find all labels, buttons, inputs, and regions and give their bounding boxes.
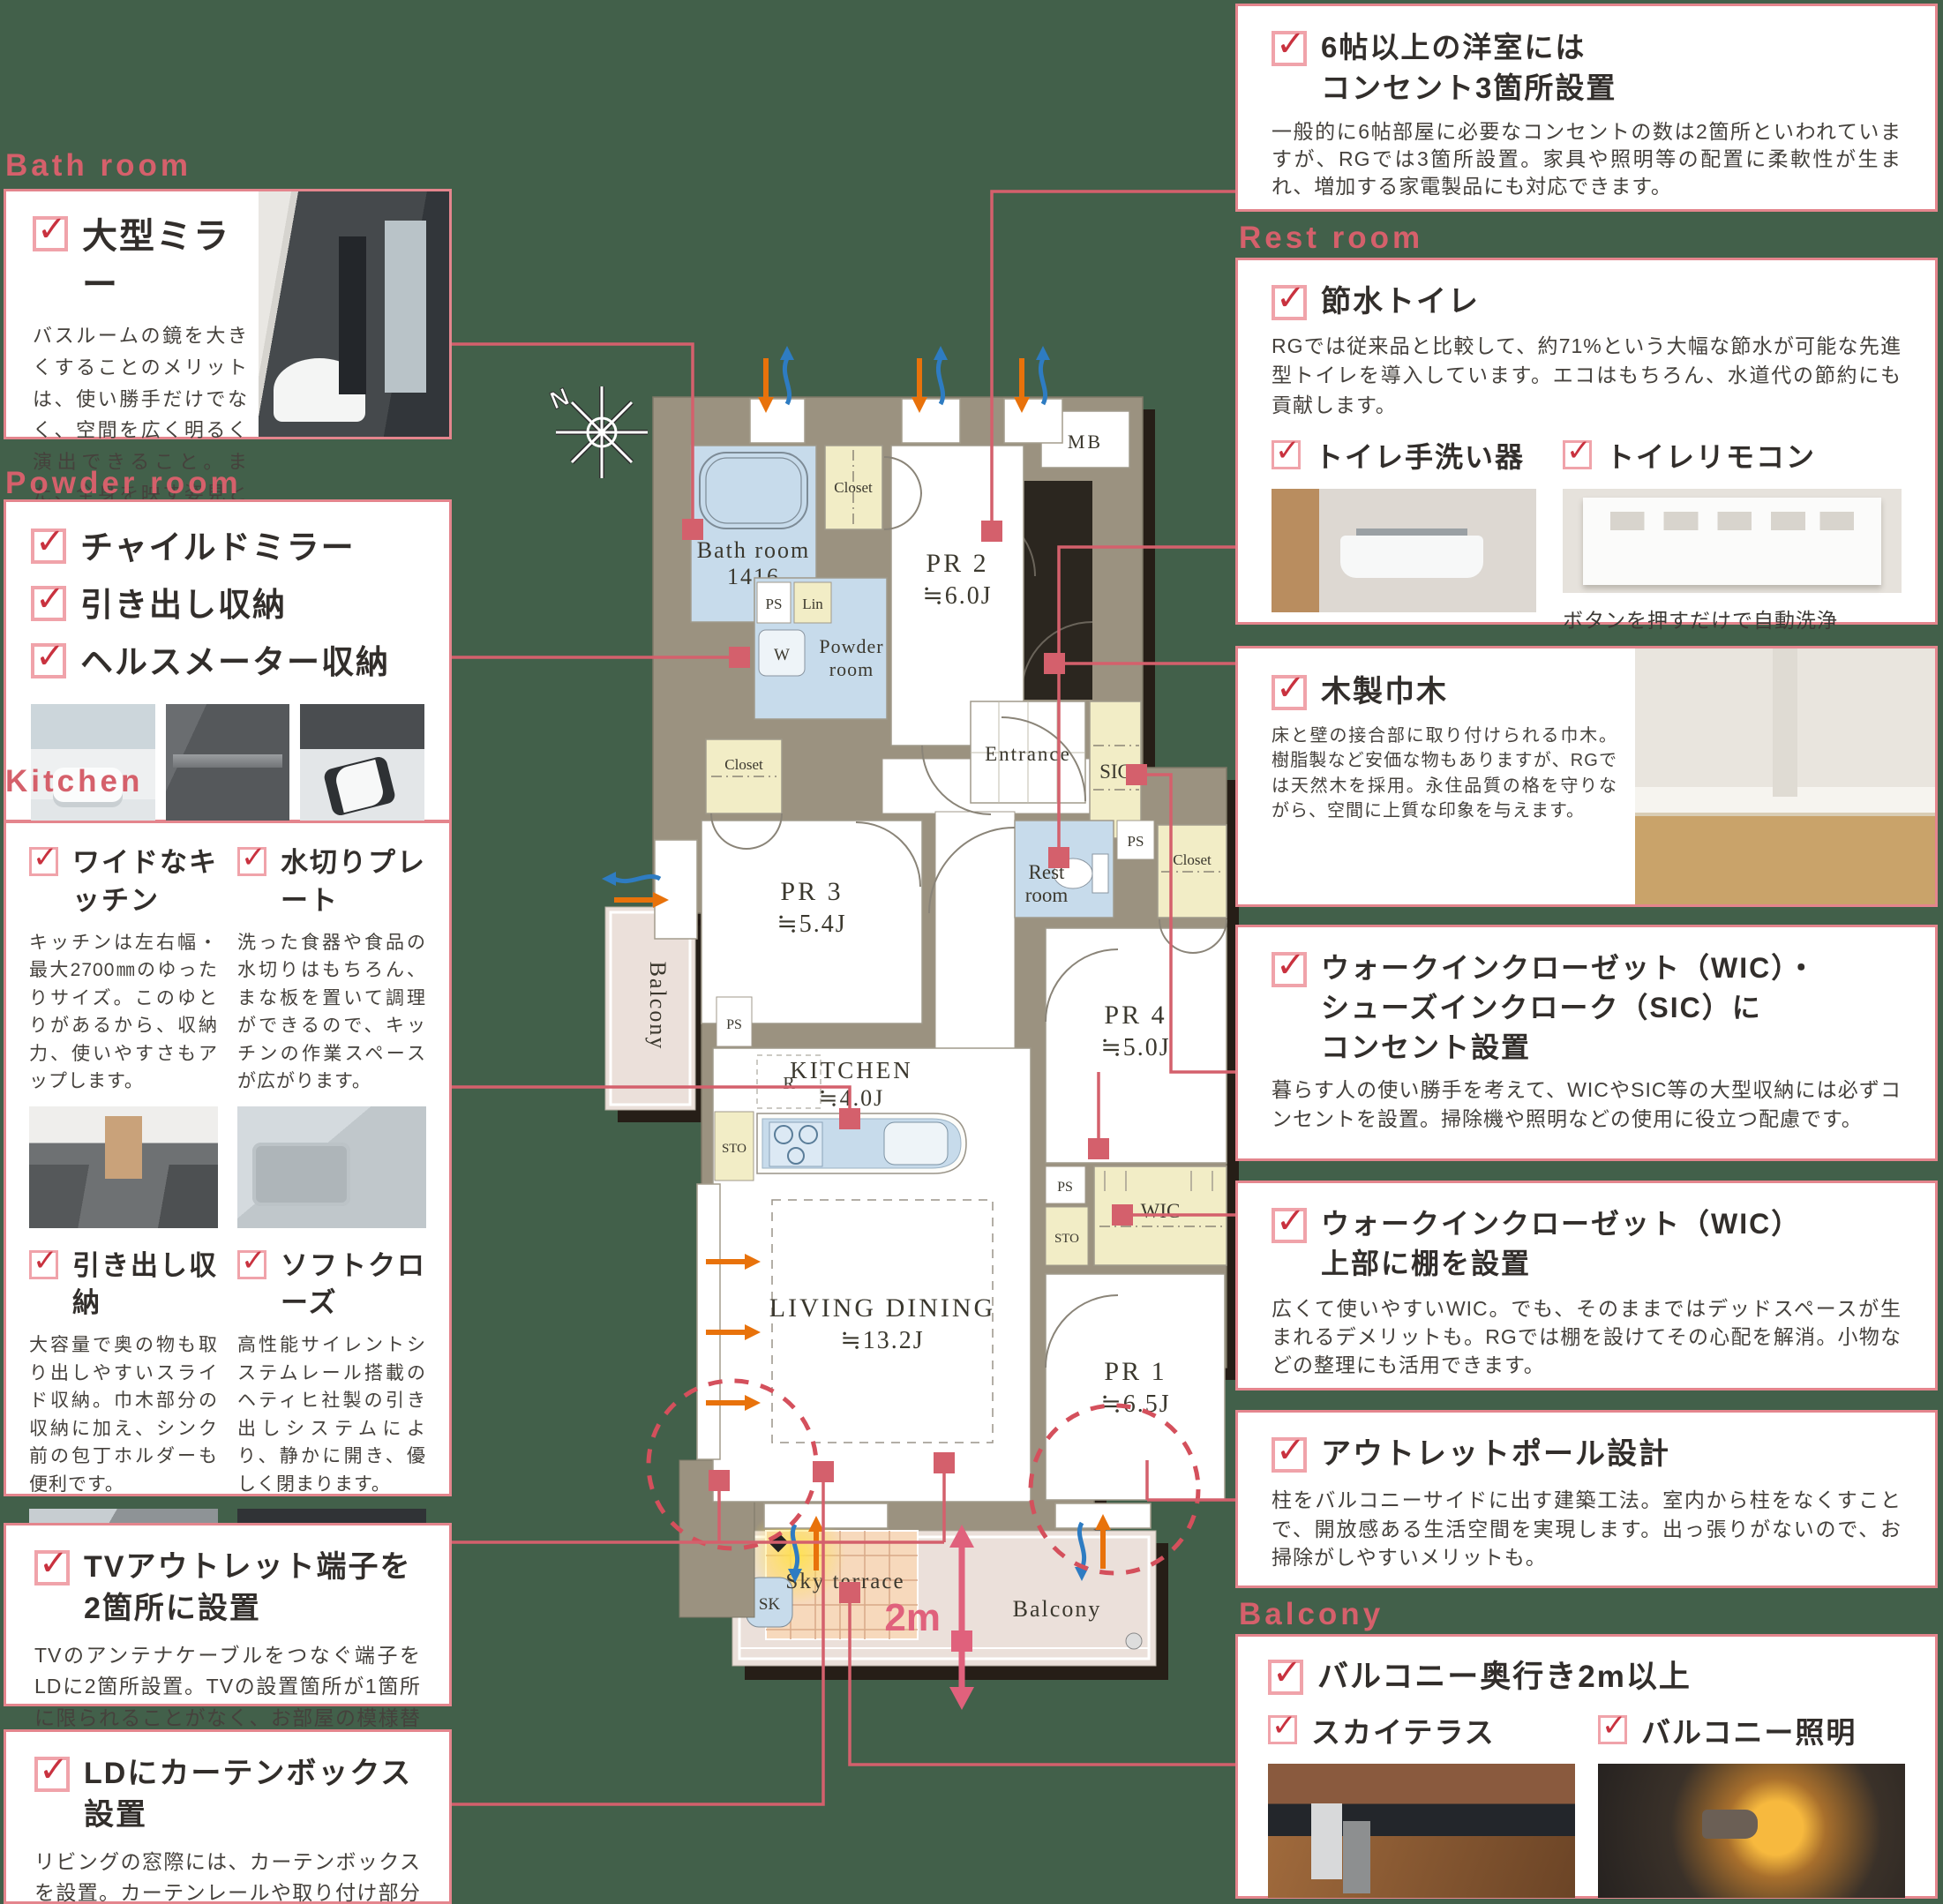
bathroom-photo — [259, 191, 449, 437]
handwash-photo — [1272, 489, 1536, 612]
bathroom-feature-title: 大型ミラー — [82, 213, 248, 310]
powder-photo-3 — [300, 704, 424, 836]
kitchen-photo-1 — [29, 1106, 218, 1228]
sto-1-label: STO — [722, 1142, 746, 1156]
balcony-feature-box: バルコニー奥行き2m以上 スカイテラス バルコニー照明 — [1235, 1634, 1938, 1899]
kitchen-feature-3-body: 大容量で奥の物も取り出しやすいスライド収納。巾木部分の収納に加え、シンク前の包丁… — [29, 1331, 218, 1498]
wic-shelf-title-2: 上部に棚を設置 — [1321, 1244, 1801, 1284]
feature-floorplan-page: Balcony Balcony SK Sky terrace MB — [0, 0, 1943, 1904]
kitchen-feature-4-body: 高性能サイレントシステムレール搭載のヘティヒ社製の引き出しシステムにより、静かに… — [237, 1331, 426, 1498]
kitchen-feature-4-title: ソフトクローズ — [281, 1248, 426, 1323]
pr3-size-label: ≒5.4J — [776, 911, 846, 938]
balcony-light-cell: バルコニー照明 — [1598, 1713, 1905, 1898]
curtain-box-title: LDにカーテンボックス設置 — [84, 1753, 421, 1836]
pr1-label: PR 1 — [1104, 1357, 1167, 1386]
closet-2-label: Closet — [724, 756, 763, 773]
kitchen-photo-2 — [237, 1106, 426, 1228]
checkbox-icon — [1272, 1208, 1307, 1243]
kitchen-label: KITCHEN — [790, 1057, 912, 1083]
outlet-pole-box: アウトレットポール設計 柱をバルコニーサイドに出す建築工法。室内から柱をなくすこ… — [1235, 1410, 1938, 1588]
pr3-label: PR 3 — [780, 877, 843, 906]
checkbox-icon — [1268, 1660, 1303, 1695]
powder-item-1: チャイルドミラー — [80, 525, 356, 570]
checkbox-icon — [1272, 1437, 1307, 1473]
checkbox-icon — [29, 1250, 58, 1279]
checkbox-icon — [1272, 285, 1307, 320]
wic-shelf-body: 広くて使いやすいWIC。でも、そのままではデッドスペースが生まれるデメリットも。… — [1272, 1294, 1902, 1380]
checkbox-icon — [31, 643, 66, 678]
ld-size-label: ≒13.2J — [840, 1327, 924, 1354]
checkbox-icon — [31, 586, 66, 621]
balcony-depth-title: バルコニー奥行き2m以上 — [1317, 1656, 1692, 1698]
closet-1-label: Closet — [834, 479, 873, 496]
ps-4-label: PS — [1057, 1180, 1073, 1195]
balcony-bottom-label: Balcony — [1013, 1596, 1102, 1622]
powder-label-2: room — [829, 658, 874, 680]
remote-photo — [1563, 489, 1902, 593]
powder-photo-2 — [166, 704, 290, 836]
ps-1-label: PS — [766, 596, 783, 612]
kitchen-feature-box: ワイドなキッチン キッチンは左右幅・最大2700㎜のゆったりサイズ。このゆとりが… — [4, 821, 452, 1496]
pr1-size-label: ≒6.5J — [1100, 1391, 1170, 1418]
restroom-feature-box: 節水トイレ RGでは従来品と比較して、約71%という大幅な節水が可能な先進型トイ… — [1235, 258, 1938, 625]
checkbox-icon — [1272, 675, 1307, 710]
checkbox-icon — [237, 847, 266, 876]
mb-label: MB — [1068, 431, 1103, 453]
balcony-left-label: Balcony — [645, 962, 671, 1051]
kitchen-feature-cell: ワイドなキッチン キッチンは左右幅・最大2700㎜のゆったりサイズ。このゆとりが… — [29, 844, 218, 1228]
baseboard-box: 木製巾木 床と壁の接合部に取り付けられる巾木。樹脂製など安価な物もありますが、R… — [1235, 646, 1938, 907]
bathroom-label: Bath room — [697, 537, 811, 563]
ld-label: LIVING DINING — [769, 1293, 995, 1323]
baseboard-photo — [1635, 648, 1935, 904]
checkbox-icon — [1563, 440, 1592, 469]
checkbox-icon — [34, 1757, 70, 1792]
restroom-feature-body: RGでは従来品と比較して、約71%という大幅な節水が可能な先進型トイレを導入して… — [1272, 332, 1902, 420]
remote-caption: ボタンを押すだけで自動洗浄 — [1563, 603, 1902, 633]
wic-outlet-title-2: シューズインクローク（SIC）に — [1321, 988, 1817, 1028]
handwash-title: トイレ手洗い器 — [1315, 438, 1525, 476]
checkbox-icon — [1272, 952, 1307, 987]
checkbox-icon — [1598, 1715, 1627, 1744]
kitchen-feature-2-title: 水切りプレート — [281, 844, 426, 920]
wic-outlet-title-3: コンセント設置 — [1321, 1028, 1817, 1068]
compass-icon: N — [546, 382, 648, 478]
closet-3-label: Closet — [1173, 851, 1212, 868]
checkbox-icon — [33, 216, 68, 251]
wic-outlet-title-1: ウォークインクローゼット（WIC）・ — [1321, 948, 1817, 988]
sky-terrace-photo — [1268, 1764, 1575, 1898]
curtain-box: LDにカーテンボックス設置 リビングの窓際には、カーテンボックスを設置。カーテン… — [4, 1729, 452, 1904]
balcony-light-title: バルコニー照明 — [1641, 1713, 1857, 1753]
kitchen-feature-1-title: ワイドなキッチン — [72, 844, 218, 920]
kitchen-feature-cell: 水切りプレート 洗った食器や食品の水切りはもちろん、まな板を置いて調理ができるの… — [237, 844, 426, 1228]
washer-label: W — [774, 646, 790, 664]
wic-shelf-box: ウォークインクローゼット（WIC） 上部に棚を設置 広くて使いやすいWIC。でも… — [1235, 1181, 1938, 1391]
section-header-balcony: Balcony — [1239, 1597, 1384, 1632]
outlet3-title-2: コンセント3箇所設置 — [1321, 68, 1617, 109]
restroom-feature-title: 節水トイレ — [1321, 281, 1480, 323]
bathroom-feature-box: 大型ミラー バスルームの鏡を大きくすることのメリットは、使い勝手だけでなく、空間… — [4, 189, 452, 439]
baseboard-title: 木製巾木 — [1321, 671, 1448, 713]
section-header-restroom: Rest room — [1239, 221, 1423, 256]
sk-label: SK — [759, 1595, 781, 1614]
ps-2-label: PS — [1128, 833, 1144, 850]
tv-outlet-box: TVアウトレット端子を2箇所に設置 TVのアンテナケーブルをつなぐ端子をLDに2… — [4, 1523, 452, 1706]
outlet3-body: 一般的に6帖部屋に必要なコンセントの数は2箇所といわれていますが、RGでは3箇所… — [1272, 118, 1902, 200]
kitchen-feature-1-body: キッチンは左右幅・最大2700㎜のゆったりサイズ。このゆとりがあるから、収納力、… — [29, 929, 218, 1096]
wic-outlet-box: ウォークインクローゼット（WIC）・ シューズインクローク（SIC）に コンセン… — [1235, 925, 1938, 1161]
lin-label: Lin — [802, 596, 823, 612]
kitchen-feature-2-body: 洗った食器や食品の水切りはもちろん、まな板を置いて調理ができるので、キッチンの作… — [237, 929, 426, 1096]
sink — [884, 1122, 948, 1165]
pr4-label: PR 4 — [1104, 1001, 1167, 1030]
pr2-size-label: ≒6.0J — [922, 582, 992, 610]
powder-item-2: 引き出し収納 — [80, 582, 287, 627]
checkbox-icon — [1268, 1715, 1297, 1744]
fridge-label: R — [783, 1074, 795, 1093]
pr4-size-label: ≒5.0J — [1100, 1034, 1170, 1061]
ps-3-label: PS — [726, 1017, 742, 1032]
kitchen-feature-3-title: 引き出し収納 — [72, 1248, 218, 1323]
outlet-pole-body: 柱をバルコニーサイドに出す建築工法。室内から柱をなくすことで、開放感ある生活空間… — [1272, 1486, 1902, 1572]
outlet-pole-title: アウトレットポール設計 — [1321, 1434, 1670, 1475]
restroom-label-2: room — [1025, 884, 1069, 906]
handwash-cell: トイレ手洗い器 — [1272, 438, 1536, 633]
sky-terrace-title: スカイテラス — [1311, 1713, 1496, 1753]
checkbox-icon — [1272, 440, 1301, 469]
section-header-bathroom: Bath room — [5, 148, 191, 184]
balcony-light-photo — [1598, 1764, 1905, 1898]
checkbox-icon — [237, 1250, 266, 1279]
wic-label: WIC — [1141, 1200, 1181, 1222]
baseboard-body: 床と壁の接合部に取り付けられる巾木。樹脂製など安価な物もありますが、RGでは天然… — [1272, 723, 1617, 824]
curtain-box-body: リビングの窓際には、カーテンボックスを設置。カーテンレールや取り付け部分を隠せる… — [34, 1847, 421, 1904]
checkbox-icon — [31, 528, 66, 564]
dim-2m-label: 2m — [884, 1596, 941, 1639]
outlet3-title-1: 6帖以上の洋室には — [1321, 27, 1617, 68]
outlet3-box: 6帖以上の洋室には コンセント3箇所設置 一般的に6帖部屋に必要なコンセントの数… — [1235, 4, 1938, 212]
powder-label-1: Powder — [819, 635, 883, 657]
wic-outlet-body: 暮らす人の使い勝手を考えて、WICやSIC等の大型収納には必ずコンセントを設置。… — [1272, 1076, 1902, 1132]
sto-2-label: STO — [1054, 1232, 1079, 1246]
compass-n-label: N — [546, 382, 573, 414]
pr2-label: PR 2 — [926, 549, 988, 578]
checkbox-icon — [34, 1550, 70, 1585]
checkbox-icon — [29, 847, 58, 876]
remote-title: トイレリモコン — [1606, 438, 1816, 476]
kitchen-size-label: ≒4.0J — [819, 1085, 884, 1111]
remote-cell: トイレリモコン ボタンを押すだけで自動洗浄 — [1563, 438, 1902, 633]
section-header-powder: Powder room — [5, 466, 242, 501]
tv-outlet-title: TVアウトレット端子を2箇所に設置 — [84, 1547, 421, 1630]
checkbox-icon — [1272, 31, 1307, 66]
wic-shelf-title-1: ウォークインクローゼット（WIC） — [1321, 1204, 1801, 1244]
section-header-kitchen: Kitchen — [5, 764, 143, 799]
powder-item-3: ヘルスメーター収納 — [80, 640, 390, 685]
room-pr1 — [1046, 1274, 1225, 1500]
sky-terrace-cell: スカイテラス — [1268, 1713, 1575, 1898]
